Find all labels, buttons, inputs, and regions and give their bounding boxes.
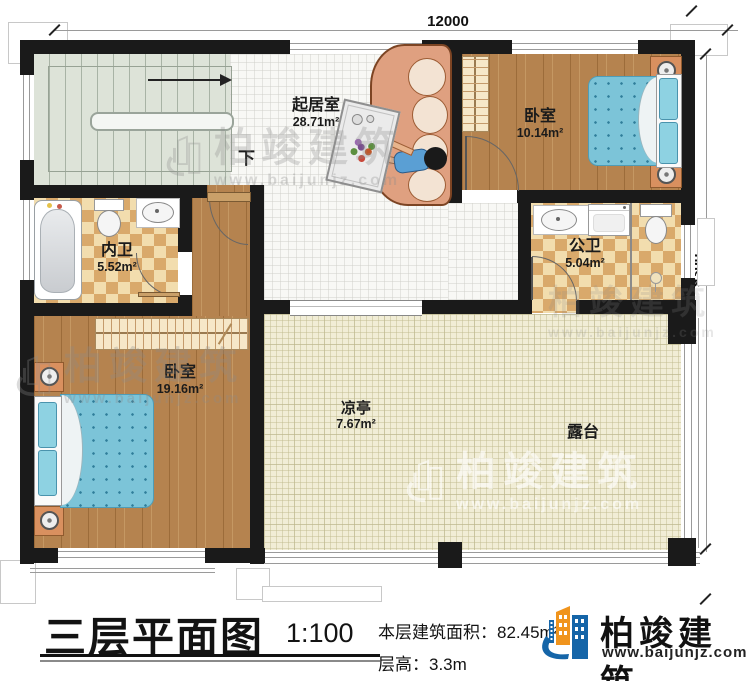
wall-segment: [681, 278, 695, 315]
wall-segment: [20, 40, 34, 75]
wall-segment: [30, 40, 290, 54]
dim-tick: [685, 5, 697, 17]
dim-extension-box: [697, 218, 715, 286]
lamp-icon: [40, 367, 59, 386]
wall-segment: [20, 280, 34, 564]
floor-drain: [650, 272, 662, 284]
window-sill-line: [30, 572, 215, 573]
pillow: [659, 122, 678, 164]
brand-logo-icon: [536, 602, 596, 664]
living-room-floor: [448, 203, 518, 300]
title-underline: [40, 660, 380, 662]
floorplan-canvas: 12000 9300: [0, 0, 750, 681]
room-name: 露台: [567, 424, 599, 442]
room-label-bedroom-right: 卧室 10.14m²: [517, 108, 564, 141]
window: [681, 225, 695, 278]
wall-segment: [264, 300, 290, 314]
terrace-floor: [264, 314, 681, 550]
room-name: 起居室: [292, 97, 340, 115]
brand-url: www.baijunjz.com: [602, 644, 747, 661]
terrace-column: [668, 538, 696, 566]
pillow: [38, 402, 57, 448]
terrace-railing-right: [698, 318, 699, 548]
wardrobe: [462, 56, 489, 132]
washing-machine: [588, 204, 630, 236]
washer-panel-line: [589, 210, 629, 211]
room-area: 10.14m²: [517, 126, 564, 140]
room-name: 卧室: [157, 364, 204, 382]
stairs-arrow: [148, 79, 222, 81]
terrace-railing-right: [691, 318, 692, 543]
window-sill-line: [30, 568, 215, 569]
plan-scale: 1:100: [286, 618, 354, 649]
floor-height-text: 层高：3.3m: [378, 650, 467, 675]
pillow: [659, 78, 678, 120]
wardrobe: [95, 318, 249, 350]
bathtub-faucet: [47, 203, 52, 208]
room-area: 28.71m²: [292, 115, 340, 129]
dim-extension-box: [0, 560, 36, 604]
door-leaf: [207, 192, 251, 202]
door-leaf: [531, 257, 533, 300]
floor-drain-stem: [655, 283, 656, 292]
person-head: [424, 147, 447, 170]
wardrobe-hanger: [218, 323, 232, 344]
bathtub-basin: [40, 209, 75, 293]
room-area: 5.04m²: [565, 256, 605, 270]
room-name: 公卫: [565, 238, 605, 256]
terrace-railing-bottom: [264, 552, 700, 553]
wall-segment: [20, 548, 58, 563]
title-underline: [40, 654, 380, 657]
bath-partition: [630, 203, 632, 300]
wall-segment: [34, 185, 207, 198]
floor-area-text: 本层建筑面积：82.45m²: [378, 618, 559, 643]
dim-tick: [699, 593, 711, 605]
room-name: 凉亭: [336, 400, 376, 417]
sink-drain: [556, 217, 560, 221]
sink-drain: [155, 209, 159, 213]
window: [58, 548, 205, 563]
nightstand: [34, 362, 64, 392]
dim-extension-box: [262, 586, 382, 602]
room-label-bedroom-left: 卧室 19.16m²: [157, 364, 204, 397]
room-label-living: 起居室 28.71m²: [292, 97, 340, 130]
dimension-line-right: [706, 55, 707, 552]
pillow: [38, 450, 57, 496]
washer-knob: [623, 206, 626, 209]
room-label-bath-public: 公卫 5.04m²: [565, 238, 605, 271]
dimension-line-top: [55, 30, 738, 31]
door-leaf: [465, 136, 467, 190]
wall-segment: [20, 303, 192, 316]
room-name: 卧室: [517, 108, 564, 126]
room-area: 7.67m²: [336, 417, 376, 431]
wall-segment: [178, 198, 192, 252]
stair-handrail: [90, 112, 234, 131]
dim-label-width: 12000: [423, 13, 473, 30]
bathtub: [34, 200, 82, 300]
stairs-arrow-head: [220, 74, 232, 86]
terrace-railing-bottom: [264, 557, 700, 558]
room-name: 内卫: [97, 242, 137, 260]
terrace-column: [438, 542, 462, 568]
window: [20, 200, 34, 280]
room-label-bath-inner: 内卫 5.52m²: [97, 242, 137, 275]
door-leaf: [138, 292, 180, 297]
nightstand: [34, 506, 64, 536]
wall-segment: [422, 300, 532, 314]
sofa-cushion: [408, 58, 446, 96]
wall-segment: [576, 300, 668, 314]
sofa-cushion: [408, 168, 446, 202]
sofa-cushion: [412, 96, 448, 134]
window: [20, 75, 34, 160]
toilet-bowl: [645, 216, 667, 244]
wall-segment: [250, 185, 264, 564]
room-label-terrace: 露台: [567, 424, 599, 442]
wall-segment: [20, 160, 34, 200]
washer-door: [593, 214, 625, 232]
wall-segment: [517, 190, 695, 203]
terrace-railing-bottom: [264, 563, 700, 564]
wall-segment: [518, 203, 531, 313]
toilet-bowl: [97, 210, 121, 237]
terrace-railing-right: [684, 318, 685, 543]
sliding-door: [290, 300, 422, 316]
lamp-icon: [40, 511, 59, 530]
stairs-down-label: 下: [238, 144, 255, 169]
window: [512, 40, 638, 54]
room-area: 5.52m²: [97, 260, 137, 274]
room-area: 19.16m²: [157, 382, 204, 396]
room-label-pavilion: 凉亭 7.67m²: [336, 400, 376, 432]
